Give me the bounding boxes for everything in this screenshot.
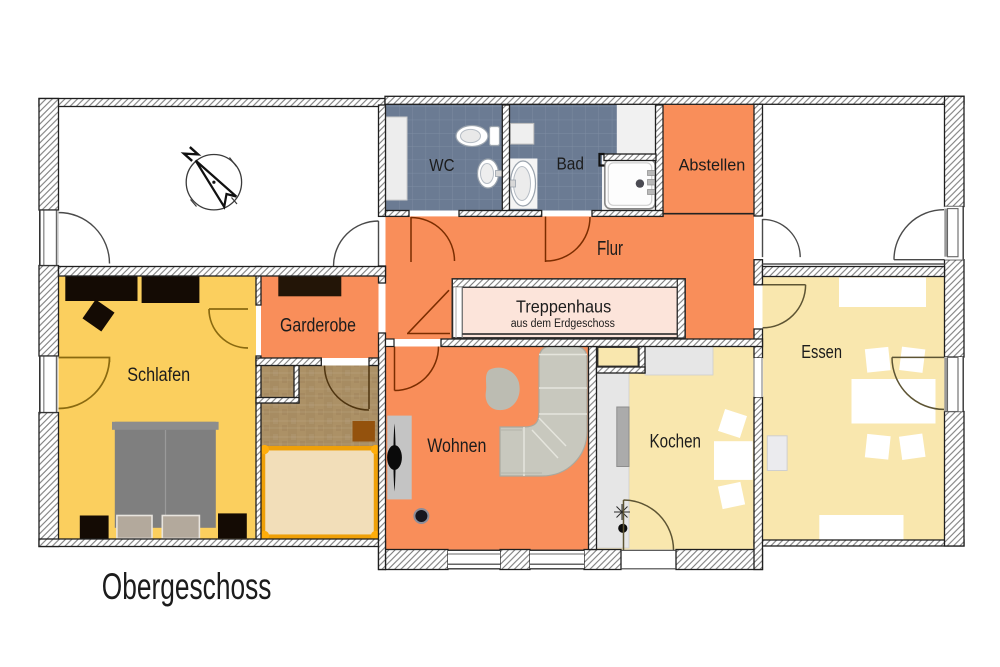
svg-text:Wohnen: Wohnen <box>427 436 486 457</box>
svg-text:Abstellen: Abstellen <box>679 156 746 175</box>
svg-text:Garderobe: Garderobe <box>280 315 356 337</box>
svg-text:Kochen: Kochen <box>650 432 702 453</box>
svg-text:Essen: Essen <box>801 341 842 362</box>
svg-text:aus dem Erdgeschoss: aus dem Erdgeschoss <box>511 318 615 330</box>
svg-text:Flur: Flur <box>597 238 623 260</box>
svg-text:WC: WC <box>429 155 454 175</box>
svg-text:Obergeschoss: Obergeschoss <box>102 565 272 607</box>
svg-text:Bad: Bad <box>557 154 585 174</box>
svg-text:Schlafen: Schlafen <box>127 365 190 386</box>
svg-text:Treppenhaus: Treppenhaus <box>516 297 611 317</box>
